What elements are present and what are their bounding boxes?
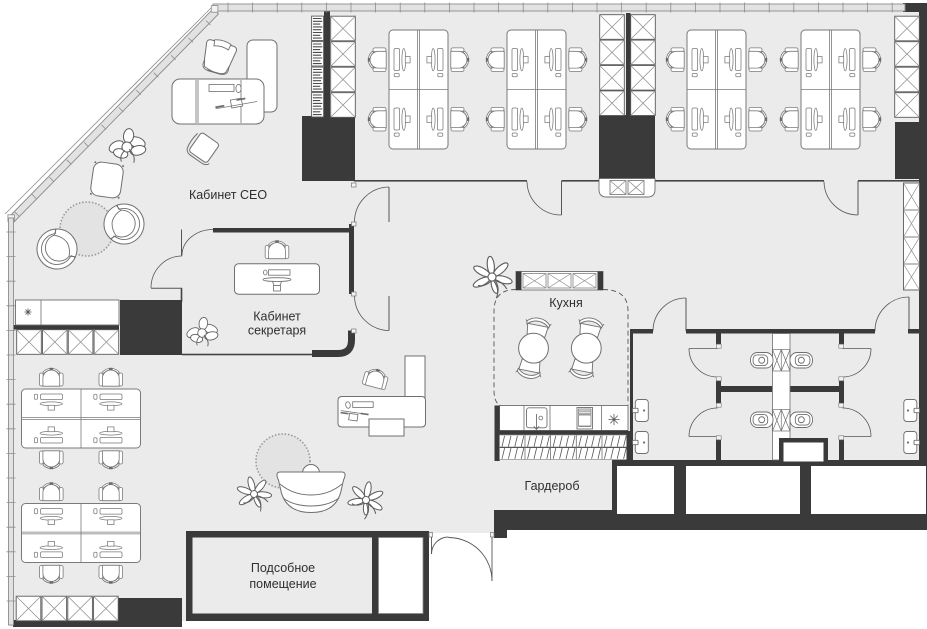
svg-text:секретаря: секретаря	[248, 324, 306, 338]
svg-text:Кабинет СЕО: Кабинет СЕО	[189, 188, 267, 202]
svg-text:Кухня: Кухня	[549, 296, 582, 310]
svg-text:помещение: помещение	[249, 577, 316, 591]
svg-text:Подсобное: Подсобное	[251, 561, 315, 575]
svg-text:Гардероб: Гардероб	[525, 479, 580, 493]
svg-text:Кабинет: Кабинет	[253, 310, 301, 324]
